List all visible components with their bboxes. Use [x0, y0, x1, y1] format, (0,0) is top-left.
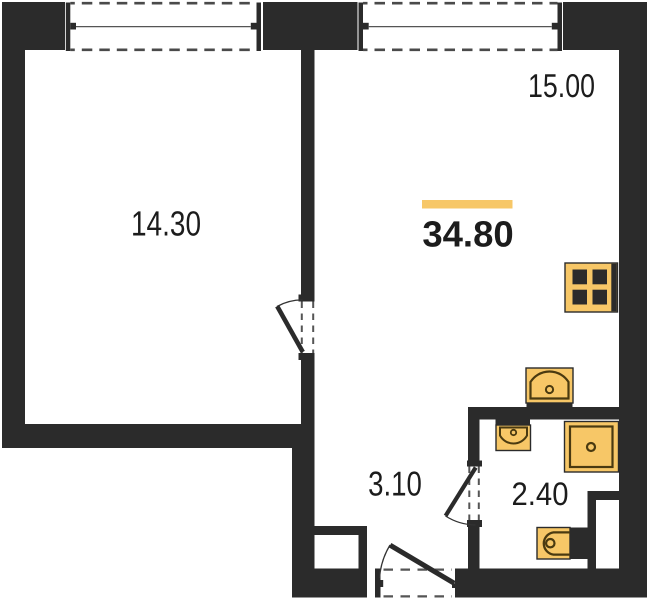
svg-text:15.00: 15.00 [528, 67, 595, 104]
svg-text:14.30: 14.30 [131, 205, 201, 244]
svg-text:34.80: 34.80 [422, 214, 513, 255]
svg-text:2.40: 2.40 [512, 476, 569, 512]
svg-text:3.10: 3.10 [368, 466, 422, 504]
